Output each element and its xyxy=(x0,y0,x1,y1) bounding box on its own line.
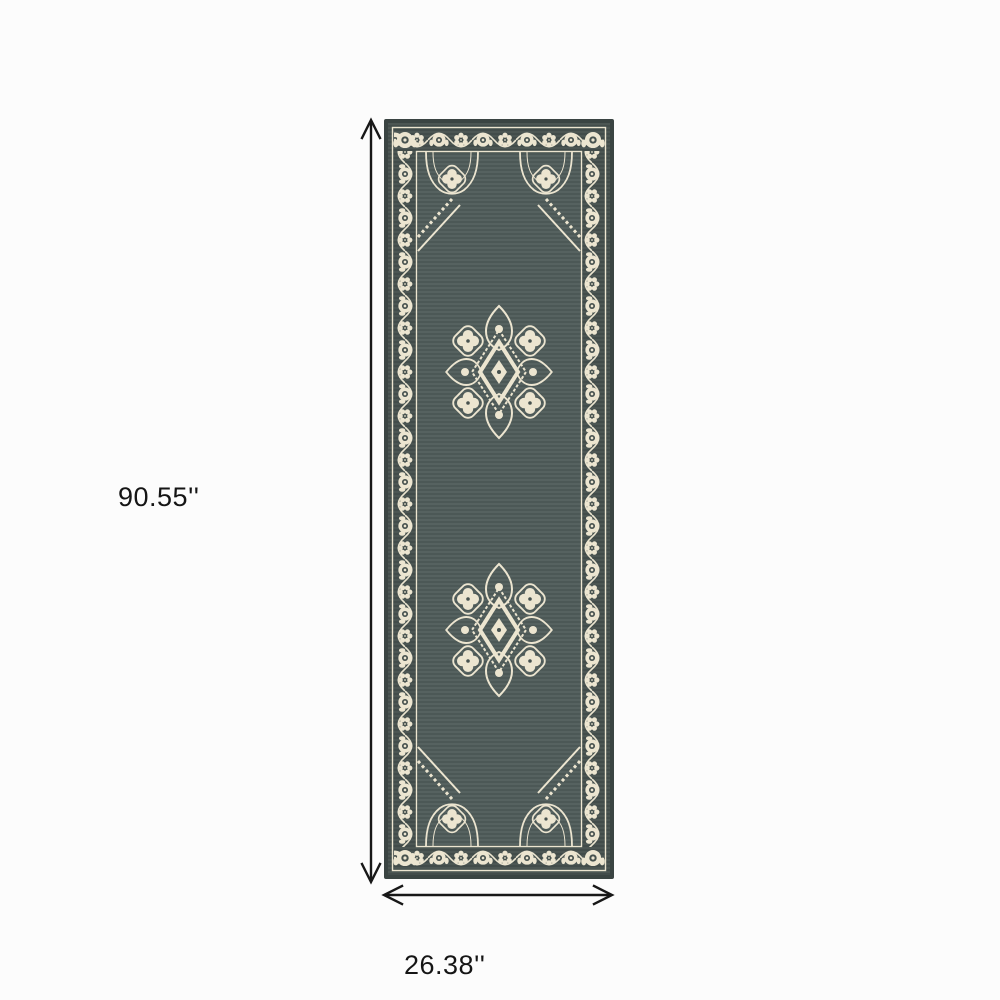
height-dimension-arrow xyxy=(357,117,385,885)
product-dimension-diagram: 90.55'' 26.38'' xyxy=(0,0,1000,1000)
width-dimension-label: 26.38'' xyxy=(404,950,485,980)
runner-rug-image xyxy=(384,119,614,879)
width-dimension-arrow xyxy=(380,882,618,908)
rug-field-texture xyxy=(418,153,580,845)
height-dimension-label: 90.55'' xyxy=(118,482,199,512)
